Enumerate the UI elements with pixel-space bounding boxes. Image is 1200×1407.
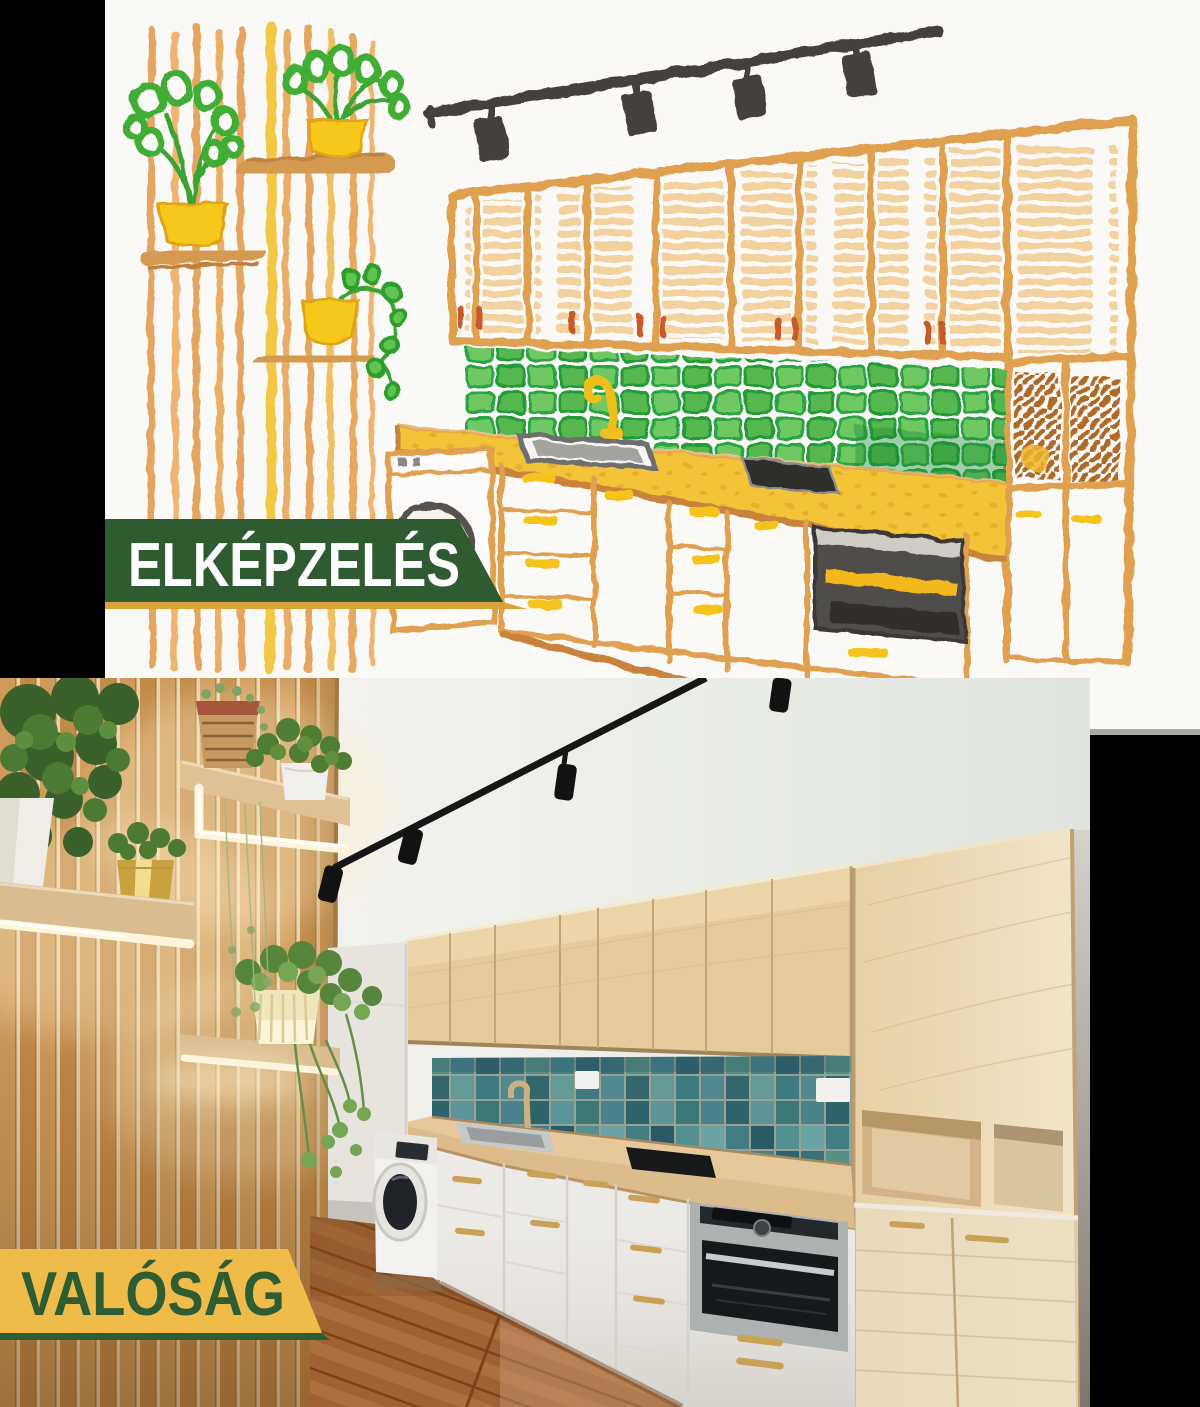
svg-text:VALÓSÁG: VALÓSÁG [21, 1260, 285, 1329]
svg-text:ELKÉPZELÉS: ELKÉPZELÉS [128, 531, 460, 600]
